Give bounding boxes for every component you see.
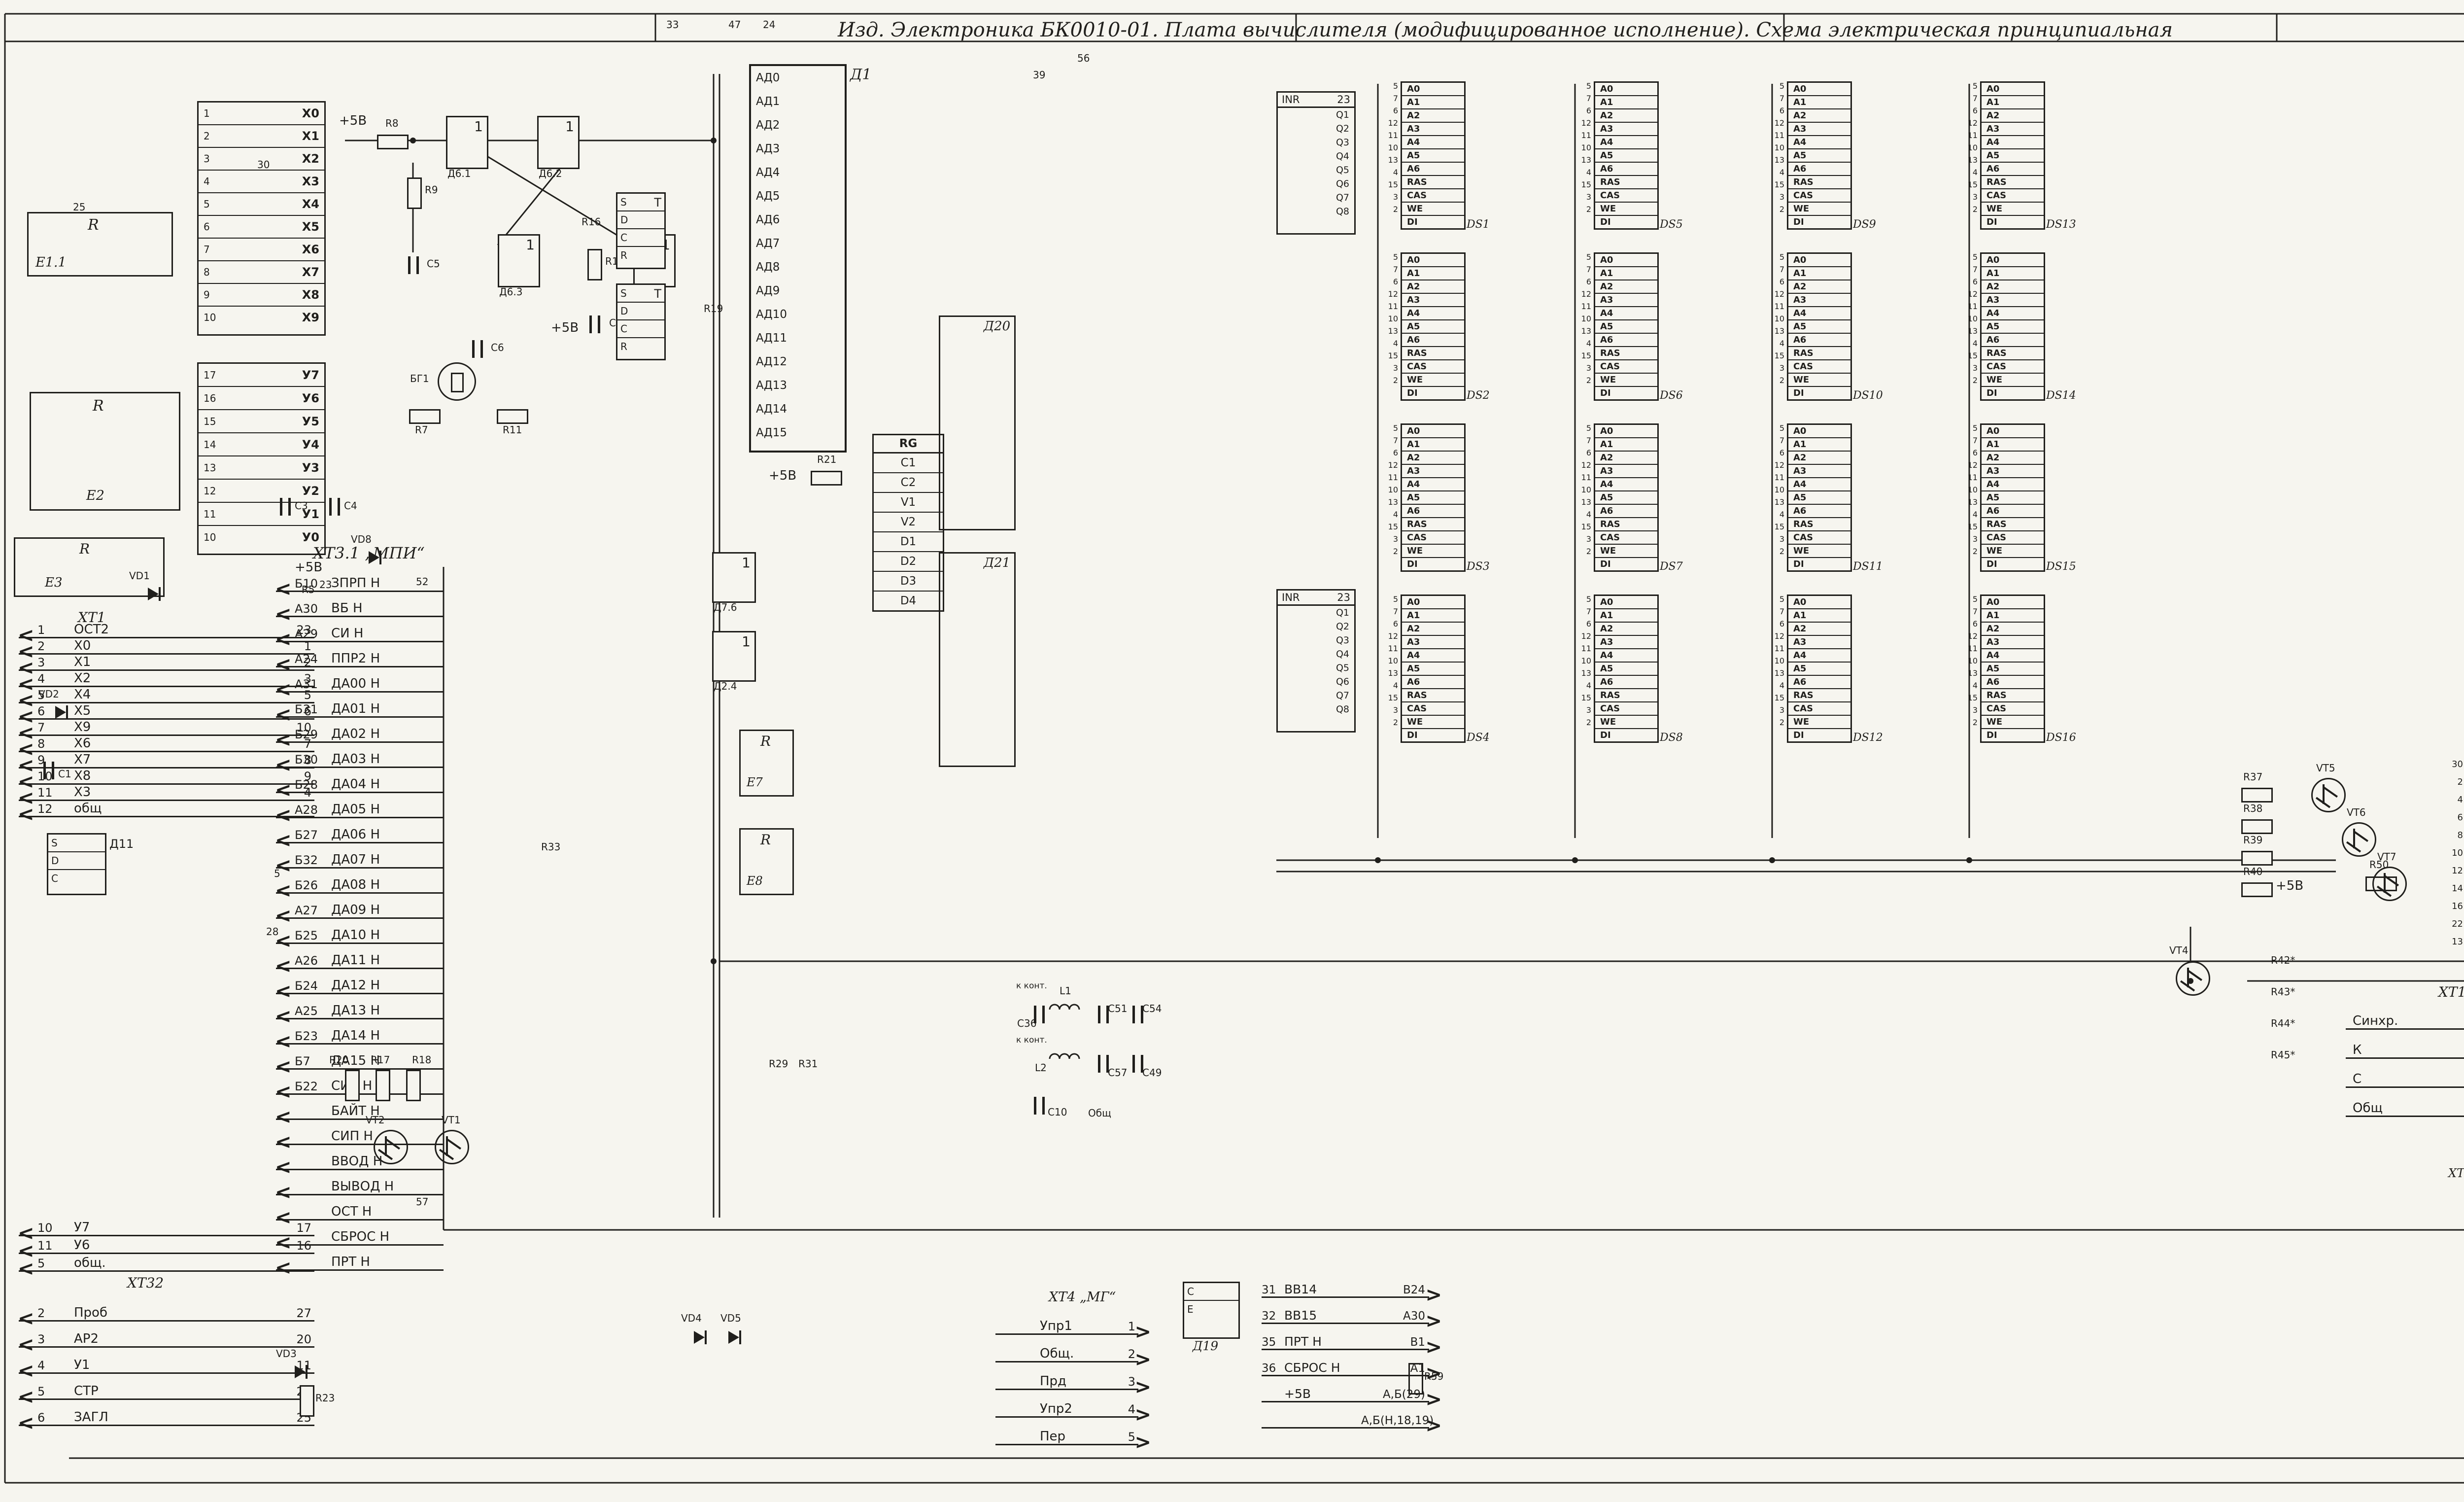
d25-pin-number: 10	[2444, 848, 2464, 866]
bus-out-list: 31ВВ14В24 32ВВ15А30 35ПРТ НВ1 36СБРОС НА…	[1262, 1272, 1429, 1429]
rg-title: RG	[874, 435, 943, 454]
ram-pin-number: 13	[1573, 668, 1594, 681]
cpu-pin: АД0	[751, 66, 845, 90]
latch-out: Q8	[1278, 205, 1354, 218]
ram-pin-label: DI	[1402, 729, 1464, 741]
diode-vd1	[148, 588, 159, 600]
ram-pin-label: RAS	[1982, 689, 2044, 702]
connector-row: Общ.2	[995, 1335, 1138, 1362]
ram-pin-number: 7	[1766, 436, 1787, 448]
transistor-vt2	[374, 1130, 408, 1164]
ram-chip-ref: DS3	[1467, 560, 1490, 573]
ram-pin-label: А2	[1402, 623, 1464, 636]
ram-pin-label: DI	[1402, 216, 1464, 228]
ram-pin-number: 15	[1766, 180, 1787, 192]
cpu-pin: АД6	[751, 208, 845, 232]
ram-pin-label: А6	[1982, 163, 2044, 176]
ram-pin-label: А4	[1402, 307, 1464, 320]
ram-pin-label: CAS	[1595, 189, 1657, 203]
bus-out-row: А,Б(Н,18,19)	[1262, 1402, 1429, 1429]
res-ref: R8	[385, 118, 399, 129]
connector-row: 3Х12	[19, 655, 314, 671]
cap-ref: С49	[1142, 1068, 1162, 1078]
ram-pin-label: А5	[1402, 149, 1464, 163]
ff-pin: D	[617, 303, 664, 320]
vt-ref: VT7	[2377, 852, 2396, 862]
ram-pin-label: А3	[1788, 636, 1850, 649]
inductor-l2	[1049, 1050, 1083, 1060]
ram-pin-label: А3	[1982, 465, 2044, 478]
ram-chip: 5761211101341532 А0А1А2А3А4А5А6RASCASWED…	[1573, 423, 1755, 572]
ram-pin-label: WE	[1982, 203, 2044, 216]
ram-pin-number: 4	[1380, 168, 1401, 180]
connector-row: 4Х23	[19, 671, 314, 687]
ram-row-latch-1: INR 23 Q1Q2Q3Q4Q5Q6Q7Q8	[1276, 91, 1356, 235]
res-ref: R7	[415, 425, 428, 435]
resistor-r11	[497, 409, 528, 424]
diode-vd4	[694, 1331, 705, 1344]
ram-pin-number: 7	[1766, 94, 1787, 106]
wire-number: 47	[728, 20, 741, 30]
ram-pin-label: CAS	[1402, 189, 1464, 203]
ram-pin-number: 2	[1766, 718, 1787, 730]
ram-pin-label: А5	[1595, 149, 1657, 163]
connector-xt1: 1ОСТ223 2Х01 3Х12 4Х23 5Х45 6Х56 7Х910 8…	[19, 622, 314, 817]
cpu-pin: АД7	[751, 232, 845, 255]
wire-number: 56	[1077, 53, 1090, 64]
resistor-r21	[811, 471, 842, 486]
cap-ref: С5	[427, 259, 440, 269]
ram-pin-number: 2	[1380, 376, 1401, 388]
ram-pin-number: 3	[1959, 534, 1980, 547]
ram-pin-number: 6	[1380, 106, 1401, 118]
mpi-row: Б30ДА03 Н	[276, 743, 444, 768]
connector-row: 7Х910	[19, 720, 314, 736]
ram-pin-label: А0	[1788, 83, 1850, 96]
wire-number: 52	[416, 577, 428, 587]
ram-pin-label: А0	[1788, 254, 1850, 267]
resistor-r39	[2241, 851, 2273, 866]
ram-pin-number: 12	[1380, 460, 1401, 473]
ram-pin-label: А3	[1595, 294, 1657, 307]
mpi-row: А28ДА05 Н	[276, 793, 444, 818]
ram-pin-number: 6	[1959, 277, 1980, 289]
ram-pin-number: 4	[1766, 339, 1787, 351]
ff-pin: C	[1184, 1283, 1238, 1301]
cpu-ref: Д1	[850, 67, 871, 83]
ram-pin-label: А6	[1595, 163, 1657, 176]
ram-pin-label: А0	[1402, 596, 1464, 609]
ram-pin-number: 4	[1959, 681, 1980, 693]
rg-pin: D4	[874, 592, 943, 610]
matrix-row: 10У0	[199, 526, 324, 548]
ram-pin-label: А4	[1402, 136, 1464, 149]
matrix-row: 6Х5	[199, 216, 324, 239]
ram-pin-number: 5	[1766, 252, 1787, 265]
matrix-row: 13У3	[199, 456, 324, 480]
cpu-pin: АД11	[751, 326, 845, 350]
ram-pin-label: А2	[1982, 452, 2044, 465]
ram-pin-label: А5	[1402, 491, 1464, 505]
mpi-row: А29СИ Н	[276, 617, 444, 642]
network-symbol: R	[79, 542, 90, 556]
ram-pin-label: WE	[1982, 545, 2044, 558]
ram-chip: 5761211101341532 А0А1А2А3А4А5А6RASCASWED…	[1959, 81, 2142, 230]
ram-pin-label: RAS	[1595, 176, 1657, 189]
ram-pin-label: WE	[1402, 716, 1464, 729]
capacitor-c57	[1098, 1055, 1109, 1073]
ram-pin-label: А4	[1595, 136, 1657, 149]
latch-out: Q8	[1278, 702, 1354, 716]
ram-pin-number: 4	[1573, 168, 1594, 180]
ram-pin-number: 6	[1766, 619, 1787, 631]
ram-pin-label: А6	[1982, 334, 2044, 347]
ram-pin-number: 6	[1573, 448, 1594, 460]
mpi-row: Б27ДА06 Н	[276, 818, 444, 843]
ram-pin-number: 12	[1959, 289, 1980, 302]
d25-pin-number: 4	[2444, 795, 2464, 812]
connector-row: Пер5	[995, 1418, 1138, 1445]
ram-pin-number: 13	[1573, 326, 1594, 339]
rg-pin: V2	[874, 513, 943, 532]
diode-vd3	[295, 1365, 306, 1378]
resistor-r37	[2241, 788, 2273, 803]
ram-pin-number: 2	[1573, 376, 1594, 388]
ram-pin-number: 7	[1959, 607, 1980, 619]
ram-pin-label: А5	[1982, 149, 2044, 163]
mpi-row: Б32ДА07 Н	[276, 843, 444, 869]
resistor-r23	[300, 1385, 314, 1417]
ram-pin-number: 10	[1380, 485, 1401, 497]
ram-pin-label: А3	[1788, 294, 1850, 307]
ram-pin-label: А6	[1595, 505, 1657, 518]
ram-pin-label: А2	[1402, 452, 1464, 465]
ram-pin-label: CAS	[1595, 531, 1657, 545]
mpi-row: А24ППР2 Н	[276, 642, 444, 667]
connector-row: Прд3	[995, 1362, 1138, 1390]
matrix-row: 7Х6	[199, 239, 324, 261]
ram-pin-number: 3	[1573, 534, 1594, 547]
res-ref: R11	[503, 425, 522, 435]
transistor-vt1	[435, 1130, 469, 1164]
ram-pin-number: 6	[1380, 619, 1401, 631]
ram-pin-number: 15	[1959, 351, 1980, 363]
ram-chip: 5761211101341532 А0А1А2А3А4А5А6RASCASWED…	[1380, 81, 1562, 230]
network-ref: Е8	[747, 875, 763, 887]
ram-pin-label: RAS	[1788, 347, 1850, 360]
ram-pin-label: CAS	[1402, 360, 1464, 374]
ram-pin-number: 7	[1573, 265, 1594, 277]
keyboard-matrix-x: 1Х0 2Х1 3Х2 4Х3 5Х4 6Х5 7Х6 8Х7 9Х8 10Х9	[197, 101, 326, 336]
ram-pin-label: А3	[1982, 294, 2044, 307]
ram-pin-label: А2	[1788, 280, 1850, 294]
d25-pin-number: 30	[2444, 759, 2464, 777]
ram-pin-number: 10	[1959, 143, 1980, 155]
ram-pin-label: А3	[1402, 294, 1464, 307]
ram-chip-ref: DS1	[1467, 218, 1490, 231]
ram-pin-label: А5	[1788, 320, 1850, 334]
mpi-row: Б28ДА04 Н	[276, 768, 444, 793]
ram-pin-number: 5	[1573, 423, 1594, 436]
res-ref: R20	[329, 1055, 348, 1065]
ram-pin-label: А3	[1595, 123, 1657, 136]
ram-pin-number: 15	[1573, 693, 1594, 705]
ram-pin-number: 2	[1573, 205, 1594, 217]
ram-pin-label: А2	[1595, 109, 1657, 123]
ram-pin-label: А2	[1595, 623, 1657, 636]
connector-mg: Упр11 Общ.2 Прд3 Упр24 Пер5	[995, 1307, 1138, 1445]
ram-pin-number: 11	[1959, 131, 1980, 143]
cap-ref: С57	[1108, 1068, 1127, 1078]
ram-pin-label: DI	[1402, 387, 1464, 399]
ram-pin-label: CAS	[1788, 189, 1850, 203]
res-ref: R45*	[2271, 1050, 2295, 1060]
ram-pin-label: А2	[1788, 109, 1850, 123]
ram-pin-number: 2	[1959, 547, 1980, 559]
mpi-row: СИП Н	[276, 1120, 444, 1145]
ram-pin-number: 10	[1766, 485, 1787, 497]
mpi-row: А27ДА09 Н	[276, 894, 444, 919]
ram-pin-label: RAS	[1788, 689, 1850, 702]
ram-pin-label: А1	[1595, 609, 1657, 623]
wire-number: 28	[266, 927, 278, 937]
ram-pin-label: DI	[1982, 729, 2044, 741]
wire-number: 39	[1033, 70, 1045, 80]
cap-ref: С51	[1108, 1004, 1127, 1014]
capacitor-c10	[1034, 1097, 1045, 1115]
flipflop-1: Т SDCR	[616, 192, 666, 269]
connector-row: 11У616	[19, 1236, 314, 1254]
network-ref: E2	[86, 489, 104, 503]
ram-pin-number: 2	[1959, 718, 1980, 730]
d25-pin-number: 12	[2444, 866, 2464, 883]
ram-pin-number: 5	[1766, 81, 1787, 94]
ff-pin: R	[617, 247, 664, 264]
network-ref: E1.1	[35, 256, 67, 270]
ram-pin-label: DI	[1788, 729, 1850, 741]
ram-pin-label: RAS	[1982, 518, 2044, 531]
ram-pin-label: А4	[1982, 307, 2044, 320]
resistor-network-e3: R E3	[14, 537, 165, 597]
ram-pin-label: А6	[1982, 676, 2044, 689]
ram-pin-label: А1	[1595, 96, 1657, 109]
res-ref: R23	[315, 1393, 335, 1403]
ram-pin-number: 12	[1380, 289, 1401, 302]
ram-pin-number: 13	[1380, 668, 1401, 681]
ram-pin-number: 3	[1573, 363, 1594, 376]
latch-out: Q7	[1278, 689, 1354, 702]
ram-pin-label: WE	[1788, 374, 1850, 387]
ram-pin-label: А2	[1595, 280, 1657, 294]
connector-row: С5	[2346, 1059, 2464, 1088]
ram-pin-number: 11	[1766, 473, 1787, 485]
ram-pin-number: 12	[1573, 460, 1594, 473]
res-ref: R17	[371, 1055, 390, 1065]
ram-pin-label: А6	[1595, 676, 1657, 689]
gate-d6-3: 1	[498, 234, 540, 287]
ram-pin-label: А3	[1788, 123, 1850, 136]
ram-pin-number: 4	[1380, 681, 1401, 693]
bus-out-row: +5ВА,Б(29)	[1262, 1376, 1429, 1402]
ram-pin-label: WE	[1788, 545, 1850, 558]
network-symbol: R	[760, 734, 771, 748]
ram-pin-label: А1	[1402, 267, 1464, 280]
ram-array: 5761211101341532 А0А1А2А3А4А5А6RASCASWED…	[1380, 81, 2154, 743]
ram-pin-number: 4	[1766, 681, 1787, 693]
ram-pin-number: 7	[1380, 607, 1401, 619]
ff-pin: D	[48, 852, 105, 870]
ram-pin-number: 7	[1766, 265, 1787, 277]
ram-pin-number: 10	[1380, 143, 1401, 155]
ram-pin-number: 13	[1573, 155, 1594, 168]
rg-pin: C1	[874, 454, 943, 473]
ram-pin-number: 5	[1380, 81, 1401, 94]
ram-pin-label: WE	[1595, 716, 1657, 729]
ram-pin-label: А1	[1788, 438, 1850, 452]
connector-row: Синхр.1	[2346, 1001, 2464, 1030]
flipflop-d11: SDC	[47, 833, 106, 895]
ram-pin-label: А5	[1595, 320, 1657, 334]
cpu-pin: АД1	[751, 90, 845, 113]
ram-pin-label: А4	[1402, 649, 1464, 663]
res-ref: R9	[425, 185, 438, 195]
ram-pin-label: А5	[1788, 491, 1850, 505]
connector-row: 5СТР26	[19, 1374, 314, 1400]
inductor-l1	[1049, 1001, 1083, 1011]
connector-row: 2Х01	[19, 638, 314, 655]
ram-pin-label: А5	[1982, 663, 2044, 676]
cap-ref: С54	[1142, 1004, 1162, 1014]
connector-row: 8Х67	[19, 736, 314, 752]
ram-chip-ref: DS7	[1660, 560, 1683, 573]
plus5v-label: +5В	[2276, 879, 2303, 893]
matrix-row: 8Х7	[199, 261, 324, 284]
resistor-r17	[376, 1070, 390, 1101]
ram-pin-label: А3	[1595, 636, 1657, 649]
ram-chip: 5761211101341532 А0А1А2А3А4А5А6RASCASWED…	[1380, 252, 1562, 401]
matrix-row: 9Х8	[199, 284, 324, 307]
resistor-r14	[587, 249, 602, 280]
ram-pin-number: 5	[1573, 594, 1594, 607]
ram-pin-number: 15	[1573, 522, 1594, 534]
ram-pin-number: 6	[1573, 106, 1594, 118]
matrix-row: 15У5	[199, 410, 324, 433]
resistor-r38	[2241, 819, 2273, 834]
ram-pin-label: А3	[1982, 636, 2044, 649]
latch-out: Q7	[1278, 191, 1354, 205]
vt-ref: VT1	[442, 1115, 461, 1125]
ram-pin-number: 2	[1380, 718, 1401, 730]
vt-ref: VT4	[2169, 945, 2189, 956]
diode-ref: VD5	[720, 1313, 741, 1324]
rg-pin: V1	[874, 493, 943, 513]
ram-pin-label: WE	[1982, 716, 2044, 729]
ram-pin-number: 12	[1766, 460, 1787, 473]
matrix-row: 2Х1	[199, 125, 324, 148]
ram-pin-number: 3	[1766, 192, 1787, 205]
cap-ref: С6	[491, 343, 504, 353]
gate-ref: Д6.3	[499, 287, 522, 297]
resistor-network-e11: R E1.1	[27, 212, 173, 277]
ram-pin-label: А3	[1402, 465, 1464, 478]
gate-d2-4: 1	[712, 631, 756, 682]
ram-pin-label: А4	[1982, 136, 2044, 149]
ram-pin-label: А6	[1788, 676, 1850, 689]
vt-ref: VT2	[366, 1115, 385, 1125]
mpi-row: Б23ДА14 Н	[276, 1019, 444, 1045]
ram-pin-label: RAS	[1982, 347, 2044, 360]
ram-pin-number: 12	[1380, 631, 1401, 644]
ram-pin-number: 12	[1959, 118, 1980, 131]
ram-chip: 5761211101341532 А0А1А2А3А4А5А6RASCASWED…	[1766, 423, 1949, 572]
mpi-row: СБРОС Н	[276, 1221, 444, 1246]
ram-pin-number: 11	[1573, 131, 1594, 143]
connector-ctv: Синхр.1 К3 С5 Общ2	[2346, 1001, 2464, 1117]
ram-pin-number: 3	[1573, 705, 1594, 718]
res-ref: R29	[769, 1059, 788, 1069]
ram-pin-number: 5	[1380, 423, 1401, 436]
ram-pin-label: CAS	[1788, 360, 1850, 374]
ram-pin-number: 12	[1959, 460, 1980, 473]
ram-pin-number: 13	[1573, 497, 1594, 510]
ram-pin-label: А5	[1982, 491, 2044, 505]
note-to-contact: к конт.	[1016, 1036, 1047, 1045]
ram-pin-label: DI	[1982, 387, 2044, 399]
ram-pin-number: 7	[1766, 607, 1787, 619]
ram-pin-label: CAS	[1595, 702, 1657, 716]
vt-ref: VT5	[2316, 763, 2335, 773]
ground-label: Общ	[1088, 1108, 1111, 1118]
ram-pin-number: 10	[1573, 314, 1594, 326]
ram-pin-label: А6	[1402, 163, 1464, 176]
ram-pin-number: 13	[1380, 326, 1401, 339]
ram-pin-label: DI	[1788, 387, 1850, 399]
cpu-pin: АД13	[751, 374, 845, 397]
ram-pin-label: А4	[1595, 478, 1657, 491]
mpi-row: А30ВБ Н	[276, 592, 444, 617]
res-ref: R44*	[2271, 1018, 2295, 1029]
resistor-r20	[345, 1070, 360, 1101]
res-ref: R16	[582, 217, 601, 227]
cpu-pin: АД8	[751, 255, 845, 279]
ram-pin-number: 10	[1766, 143, 1787, 155]
ram-pin-label: DI	[1788, 558, 1850, 570]
ram-pin-label: А1	[1402, 609, 1464, 623]
ram-pin-number: 5	[1959, 252, 1980, 265]
capacitor-c7	[589, 315, 600, 333]
connector-row: 6Х56	[19, 703, 314, 720]
buffer-d20: Д20	[939, 315, 1016, 530]
ram-pin-label: А0	[1595, 425, 1657, 438]
d25-pin-number: 14	[2444, 883, 2464, 901]
ram-pin-label: А1	[1788, 267, 1850, 280]
diode-ref: VD8	[351, 534, 372, 545]
ram-pin-label: WE	[1595, 203, 1657, 216]
cpu-pin: АД9	[751, 279, 845, 303]
ram-pin-number: 12	[1766, 118, 1787, 131]
connector-ctv-label: ХТ11 „ЦТВ“	[2438, 985, 2464, 999]
ram-pin-label: А5	[1788, 149, 1850, 163]
ram-pin-number: 4	[1573, 510, 1594, 522]
ram-pin-label: А5	[1595, 491, 1657, 505]
matrix-row: 10Х9	[199, 307, 324, 328]
resistor-r18	[406, 1070, 421, 1101]
ram-pin-number: 11	[1766, 302, 1787, 314]
ram-pin-number: 13	[1766, 326, 1787, 339]
ram-pin-number: 11	[1573, 644, 1594, 656]
ram-pin-number: 12	[1959, 631, 1980, 644]
ram-pin-label: А1	[1595, 267, 1657, 280]
